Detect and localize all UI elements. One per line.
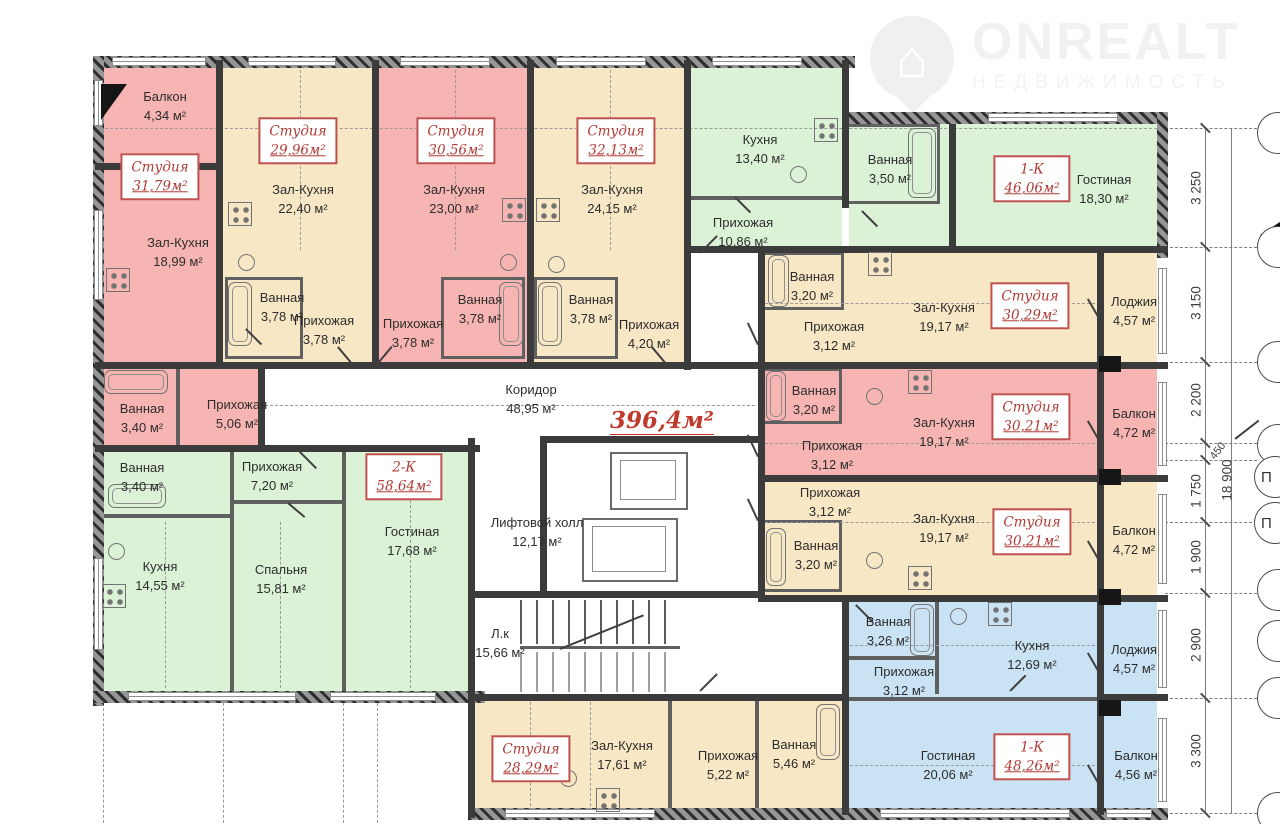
unit-type: 1-К: [1004, 160, 1059, 178]
room-name: Зал-Кухня: [147, 236, 209, 250]
grid-line: [1165, 443, 1257, 444]
grid-bubble: П: [1254, 456, 1280, 498]
room-label: Ванная 3,26 м²: [866, 615, 911, 649]
room-label: Ванная 3,50 м²: [868, 153, 913, 187]
unit-area: 31,79м²: [131, 178, 188, 196]
room-label: Прихожая 3,12 м²: [802, 439, 862, 473]
room-name: Балкон: [1112, 407, 1156, 421]
room-area: 4,34 м²: [144, 110, 186, 124]
sink-icon: [790, 166, 807, 183]
sink-icon: [108, 543, 125, 560]
unit-type: Студия: [1001, 287, 1058, 305]
partition: [230, 452, 234, 692]
dimension-label-overall: 18 900: [1220, 459, 1235, 500]
unit-area: 30,21м²: [1002, 418, 1059, 436]
unit-type: Студия: [587, 122, 644, 140]
room-label: Прихожая 4,20 м²: [619, 318, 679, 352]
wall: [758, 250, 765, 602]
room-label: Прихожая 3,78 м²: [294, 314, 354, 348]
wall: [216, 60, 223, 366]
room-name: Гостиная: [921, 749, 976, 763]
stove-icon: [868, 252, 892, 276]
room-name: Ванная: [790, 270, 835, 284]
total-area-label: 396,4м²: [610, 407, 714, 435]
bathtub-icon: [538, 282, 562, 346]
room-label: Гостиная 18,30 м²: [1077, 173, 1132, 207]
room-label: Балкон 4,72 м²: [1112, 524, 1156, 558]
room-name: Лоджия: [1111, 643, 1157, 657]
room-area: 17,68 м²: [387, 545, 436, 559]
room-area: 3,78 м²: [459, 313, 501, 327]
grid-line: [103, 703, 104, 823]
partition: [845, 656, 937, 660]
room-area: 5,06 м²: [216, 418, 258, 432]
unit-type: 1-К: [1004, 738, 1059, 756]
grid-line: [1165, 362, 1257, 363]
room-label: Лоджия 4,57 м²: [1111, 643, 1157, 677]
room-name: Прихожая: [698, 749, 758, 763]
room-area: 4,72 м²: [1113, 427, 1155, 441]
room-name: Зал-Кухня: [581, 183, 643, 197]
logo-subtitle: НЕДВИЖИМОСТЬ: [972, 72, 1240, 94]
room-area: 3,20 м²: [795, 559, 837, 573]
room-area: 3,20 м²: [793, 404, 835, 418]
grid-letter: П: [1261, 515, 1272, 532]
room-area: 3,78 м²: [392, 337, 434, 351]
room-label: Ванная 3,78 м²: [569, 293, 614, 327]
grid-letter: П: [1261, 469, 1272, 486]
room-area: 4,72 м²: [1113, 544, 1155, 558]
wall: [842, 60, 849, 208]
room-area: 3,12 м²: [813, 340, 855, 354]
room-area: 5,46 м²: [773, 758, 815, 772]
window: [94, 210, 103, 300]
window: [1158, 610, 1167, 688]
room-label: Кухня 14,55 м²: [135, 560, 184, 594]
room-label: Ванная 3,20 м²: [792, 384, 837, 418]
room-label: Ванная 3,20 м²: [790, 270, 835, 304]
stove-icon: [106, 268, 130, 292]
window: [1106, 809, 1152, 818]
room-area: 14,55 м²: [135, 580, 184, 594]
dimension-label: 3 150: [1189, 286, 1204, 320]
unit-label: Студия 29,96м²: [258, 117, 337, 164]
room-name: Зал-Кухня: [272, 183, 334, 197]
partition: [935, 602, 939, 694]
room-name: Балкон: [1112, 524, 1156, 538]
room-name: Ванная: [866, 615, 911, 629]
room-area: 15,66 м²: [475, 647, 524, 661]
room-name: Прихожая: [207, 398, 267, 412]
room-name: Ванная: [772, 738, 817, 752]
stove-icon: [228, 202, 252, 226]
room-name: Балкон: [143, 90, 187, 104]
room-name: Зал-Кухня: [913, 512, 975, 526]
wall: [540, 436, 760, 443]
grid-line: [223, 703, 224, 823]
room-name: Кухня: [1015, 639, 1050, 653]
room-area: 3,26 м²: [867, 635, 909, 649]
room-area: 19,17 м²: [919, 321, 968, 335]
partition: [668, 701, 672, 808]
unit-label: Студия 32,13м²: [576, 117, 655, 164]
wall-block: [1099, 469, 1121, 485]
grid-line: [343, 703, 344, 823]
grid-bubble: [1257, 341, 1280, 383]
room-area: 18,30 м²: [1079, 193, 1128, 207]
unit-area: 30,29м²: [1001, 307, 1058, 325]
room-name: Ванная: [458, 293, 503, 307]
bathtub-icon: [499, 282, 523, 346]
sink-icon: [866, 388, 883, 405]
unit-area: 30,21м²: [1003, 533, 1060, 551]
wall-block: [1099, 356, 1121, 372]
room-name: Л.к: [491, 627, 509, 641]
grid-bubble: [1257, 112, 1280, 154]
bathtub-icon: [766, 528, 786, 586]
room-label: Прихожая 5,06 м²: [207, 398, 267, 432]
room-name: Гостиная: [385, 525, 440, 539]
grid-line: [1165, 247, 1257, 248]
logo-text: ONREALT НЕДВИЖИМОСТЬ: [972, 16, 1240, 94]
stairs-rail: [520, 646, 680, 649]
room-area: 23,00 м²: [429, 203, 478, 217]
room-area: 24,15 м²: [587, 203, 636, 217]
room-label: Спальня 15,81 м²: [255, 563, 307, 597]
window: [1158, 718, 1167, 802]
dimension-label: 2 900: [1189, 628, 1204, 662]
wall: [475, 591, 765, 598]
room-area: 15,81 м²: [256, 583, 305, 597]
room-name: Кухня: [143, 560, 178, 574]
window: [1158, 382, 1167, 466]
balcony-door-mark: [101, 84, 127, 120]
unit-label: 1-К 46,06м²: [993, 155, 1070, 202]
sink-icon: [866, 552, 883, 569]
window: [712, 57, 802, 66]
bathtub-icon: [104, 370, 168, 394]
room-label: Ванная 3,20 м²: [794, 539, 839, 573]
lift-hall-label: Лифтовой холл 12,17 м²: [491, 516, 584, 550]
room-area: 12,17 м²: [512, 536, 561, 550]
grid-bubble: [1257, 677, 1280, 719]
sink-icon: [950, 608, 967, 625]
room-area: 19,17 м²: [919, 532, 968, 546]
room-label: Балкон 4,72 м²: [1112, 407, 1156, 441]
wall: [372, 60, 379, 368]
grid-line: [1165, 813, 1257, 814]
grid-bubble: [1257, 569, 1280, 611]
unit-type: Студия: [1003, 513, 1060, 531]
partition: [342, 452, 346, 692]
room-name: Ванная: [792, 384, 837, 398]
unit-label: Студия 30,56м²: [416, 117, 495, 164]
partition: [691, 196, 843, 200]
window: [880, 809, 1070, 818]
room-name: Прихожая: [804, 320, 864, 334]
room-area: 3,20 м²: [791, 290, 833, 304]
room-area: 4,56 м²: [1115, 769, 1157, 783]
dimension-label: 2 200: [1189, 383, 1204, 417]
window: [112, 57, 206, 66]
grid-bubble: П: [1254, 502, 1280, 544]
room-name: Прихожая: [802, 439, 862, 453]
elevator-car: [620, 460, 676, 500]
onrealt-logo: ⌂ ONREALT НЕДВИЖИМОСТЬ: [870, 16, 1240, 104]
door: [699, 673, 717, 691]
stove-icon: [596, 788, 620, 812]
room-name: Прихожая: [713, 216, 773, 230]
room-area: 13,40 м²: [735, 153, 784, 167]
window: [1158, 268, 1167, 354]
room-area: 5,22 м²: [707, 769, 749, 783]
room-name: Лифтовой холл: [491, 516, 584, 530]
unit-area: 29,96м²: [269, 142, 326, 160]
grid-bubble: [1257, 792, 1280, 824]
room-label: Кухня 13,40 м²: [735, 133, 784, 167]
room-name: Балкон: [1114, 749, 1158, 763]
room-name: Прихожая: [874, 665, 934, 679]
room-name: Ванная: [569, 293, 614, 307]
room-label: Зал-Кухня 22,40 м²: [272, 183, 334, 217]
room-area: 18,99 м²: [153, 256, 202, 270]
room-area: 3,50 м²: [869, 173, 911, 187]
floor-plan: ⌂ ONREALT НЕДВИЖИМОСТЬ: [0, 0, 1280, 824]
window: [988, 113, 1118, 122]
room-name: Прихожая: [383, 317, 443, 331]
room-label: Балкон 4,56 м²: [1114, 749, 1158, 783]
sink-icon: [548, 256, 565, 273]
room-name: Лоджия: [1111, 295, 1157, 309]
unit-label: Студия 30,21м²: [991, 393, 1070, 440]
room-area: 10,86 м²: [718, 236, 767, 250]
room-label: Зал-Кухня 17,61 м²: [591, 739, 653, 773]
logo-brand: ONREALT: [972, 16, 1240, 68]
bathtub-icon: [228, 282, 252, 346]
room-label: Зал-Кухня 19,17 м²: [913, 301, 975, 335]
wall: [1157, 112, 1168, 258]
room-name: Зал-Кухня: [423, 183, 485, 197]
room-area: 19,17 м²: [919, 436, 968, 450]
room-label: Ванная 3,78 м²: [458, 293, 503, 327]
room-name: Ванная: [868, 153, 913, 167]
room-name: Ванная: [794, 539, 839, 553]
room-name: Ванная: [120, 402, 165, 416]
unit-type: Студия: [427, 122, 484, 140]
window: [1158, 494, 1167, 584]
room-label: Прихожая 3,12 м²: [874, 665, 934, 699]
stove-icon: [536, 198, 560, 222]
stove-icon: [814, 118, 838, 142]
sink-icon: [500, 254, 517, 271]
room-label: Кухня 12,69 м²: [1007, 639, 1056, 673]
wall: [468, 438, 475, 818]
unit-type: Студия: [131, 158, 188, 176]
room-area: 3,78 м²: [570, 313, 612, 327]
room-name: Прихожая: [242, 460, 302, 474]
wall: [468, 694, 849, 701]
room-area: 3,12 м²: [883, 685, 925, 699]
grid-line: [1165, 460, 1257, 461]
unit-label: Студия 30,29м²: [990, 282, 1069, 329]
room-area: 20,06 м²: [923, 769, 972, 783]
room-name: Зал-Кухня: [913, 301, 975, 315]
axis-line: [165, 522, 166, 688]
stove-icon: [102, 584, 126, 608]
room-label: Зал-Кухня 23,00 м²: [423, 183, 485, 217]
room-label: Зал-Кухня 24,15 м²: [581, 183, 643, 217]
stove-icon: [908, 566, 932, 590]
room-name: Прихожая: [619, 318, 679, 332]
wall-block: [1099, 700, 1121, 716]
room-label: Ванная 3,40 м²: [120, 461, 165, 495]
dimension-label: 3 250: [1189, 171, 1204, 205]
room-name: Зал-Кухня: [591, 739, 653, 753]
bathtub-icon: [910, 604, 934, 656]
room-name: Коридор: [505, 383, 556, 397]
unit-area: 28,29м²: [502, 760, 559, 778]
room-area: 17,61 м²: [597, 759, 646, 773]
window: [128, 692, 296, 701]
stairwell-label: Л.к 15,66 м²: [475, 627, 524, 661]
wall-block: [1099, 589, 1121, 605]
room-name: Зал-Кухня: [913, 416, 975, 430]
corridor-label: Коридор 48,95 м²: [505, 383, 556, 417]
stove-icon: [908, 370, 932, 394]
wall: [1097, 250, 1104, 815]
room-label: Прихожая 3,12 м²: [800, 486, 860, 520]
unit-area: 32,13м²: [587, 142, 644, 160]
unit-area: 30,56м²: [427, 142, 484, 160]
house-glyph: ⌂: [870, 22, 954, 98]
wall: [842, 595, 849, 815]
sink-icon: [238, 254, 255, 271]
room-area: 3,12 м²: [809, 506, 851, 520]
room-name: Спальня: [255, 563, 307, 577]
room-label: Зал-Кухня 18,99 м²: [147, 236, 209, 270]
grid-line: [1165, 593, 1257, 594]
unit-area: 58,64м²: [376, 478, 431, 496]
room-name: Прихожая: [294, 314, 354, 328]
unit-label: Студия 31,79м²: [120, 153, 199, 200]
wall: [949, 124, 956, 250]
room-area: 3,78 м²: [303, 334, 345, 348]
room-label: Балкон 4,34 м²: [143, 90, 187, 124]
room-label: Прихожая 3,12 м²: [804, 320, 864, 354]
room-label: Прихожая 7,20 м²: [242, 460, 302, 494]
room-area: 4,57 м²: [1113, 663, 1155, 677]
grid-line: [377, 703, 378, 823]
bathtub-icon: [816, 704, 840, 760]
room-name: Ванная: [120, 461, 165, 475]
axis-line: [280, 522, 281, 688]
dimension-label: 1 900: [1189, 540, 1204, 574]
unit-type: Студия: [502, 740, 559, 758]
room-name: Ванная: [260, 291, 305, 305]
bathtub-icon: [766, 371, 786, 421]
room-label: Прихожая 3,78 м²: [383, 317, 443, 351]
grid-line: [1165, 698, 1257, 699]
partition: [176, 369, 180, 445]
wall: [95, 445, 480, 452]
stairs-flight-lower: [520, 652, 680, 692]
stove-icon: [502, 198, 526, 222]
window: [556, 57, 646, 66]
room-label: Ванная 3,40 м²: [120, 402, 165, 436]
room-label: Гостиная 17,68 м²: [385, 525, 440, 559]
wall: [684, 60, 691, 370]
room-label: Прихожая 10,86 м²: [713, 216, 773, 250]
room-name: Гостиная: [1077, 173, 1132, 187]
unit-label: 2-К 58,64м²: [365, 453, 442, 500]
partition: [98, 514, 230, 518]
room-area: 48,95 м²: [506, 403, 555, 417]
room-area: 3,40 м²: [121, 422, 163, 436]
room-label: Прихожая 5,22 м²: [698, 749, 758, 783]
room-label: Ванная 5,46 м²: [772, 738, 817, 772]
grid-bubble: [1257, 620, 1280, 662]
grid-line: [1165, 128, 1257, 129]
unit-type: 2-К: [376, 458, 431, 476]
dimension-line: [1205, 128, 1206, 813]
dimension-label: 3 300: [1189, 734, 1204, 768]
room-label: Лоджия 4,57 м²: [1111, 295, 1157, 329]
unit-area: 46,06м²: [1004, 180, 1059, 198]
elevator-car: [592, 526, 666, 572]
stairs-flight-upper: [520, 600, 680, 644]
dimension-leader: [1235, 420, 1260, 440]
bathtub-icon: [768, 255, 789, 307]
stove-icon: [988, 602, 1012, 626]
house-pin-icon: ⌂: [870, 16, 958, 104]
unit-type: Студия: [269, 122, 326, 140]
room-label: Зал-Кухня 19,17 м²: [913, 512, 975, 546]
wall: [527, 60, 534, 368]
room-label: Зал-Кухня 19,17 м²: [913, 416, 975, 450]
unit-type: Студия: [1002, 398, 1059, 416]
grid-line: [1165, 522, 1257, 523]
room-area: 12,69 м²: [1007, 659, 1056, 673]
unit-label: Студия 30,21м²: [992, 508, 1071, 555]
room-name: Кухня: [743, 133, 778, 147]
room-area: 3,12 м²: [811, 459, 853, 473]
window: [505, 809, 655, 818]
room-area: 4,57 м²: [1113, 315, 1155, 329]
room-name: Прихожая: [800, 486, 860, 500]
unit-label: Студия 28,29м²: [491, 735, 570, 782]
room-area: 7,20 м²: [251, 480, 293, 494]
window: [248, 57, 336, 66]
window: [330, 692, 436, 701]
room-area: 4,20 м²: [628, 338, 670, 352]
window: [400, 57, 490, 66]
room-label: Гостиная 20,06 м²: [921, 749, 976, 783]
unit-area: 48,26м²: [1004, 758, 1059, 776]
room-area: 22,40 м²: [278, 203, 327, 217]
room-area: 3,40 м²: [121, 481, 163, 495]
dimension-label: 1 750: [1189, 474, 1204, 508]
unit-label: 1-К 48,26м²: [993, 733, 1070, 780]
